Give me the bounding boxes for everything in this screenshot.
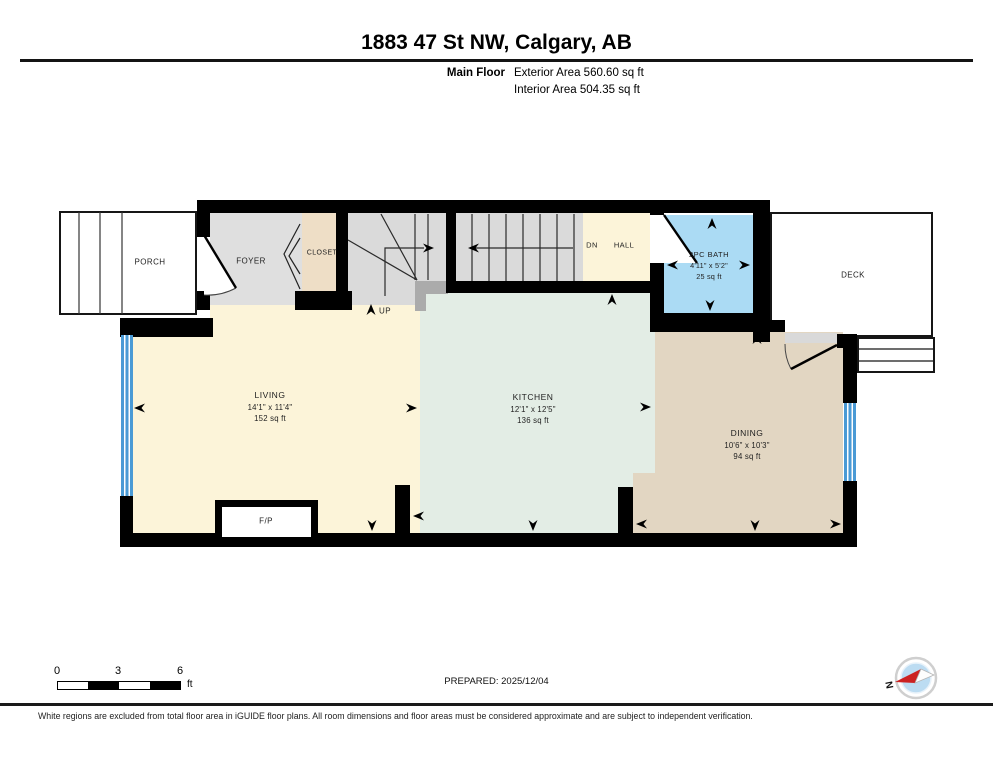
fireplace-label: F/P: [259, 517, 273, 526]
living-name: LIVING: [248, 390, 293, 400]
porch-area: [59, 211, 197, 315]
dining-dimensions: 10'6" x 10'3": [724, 441, 769, 450]
prepared-date: PREPARED: 2025/12/04: [0, 676, 993, 687]
kitchen-dimensions: 12'1" x 12'5": [510, 405, 555, 414]
dining-area: 94 sq ft: [724, 452, 769, 461]
wall-foyer-west-lower: [197, 291, 210, 310]
deck-steps: [857, 337, 935, 373]
interior-area-label: Interior Area 504.35 sq ft: [514, 84, 640, 96]
wall-foyer-west-upper: [197, 200, 210, 237]
stairs-up-label: UP: [379, 307, 391, 316]
bath-label: 2PC BATH 4'11" x 5'2" 25 sq ft: [689, 250, 729, 281]
dining-floor-sw: [633, 473, 655, 533]
kitchen-name: KITCHEN: [510, 392, 555, 402]
wall-kitchen-dining-stub: [618, 487, 633, 533]
header-divider: [20, 59, 973, 62]
bath-area: 25 sq ft: [689, 272, 729, 281]
floor-plan-page: 1883 47 St NW, Calgary, AB Main Floor Ex…: [0, 0, 993, 768]
wall-north: [197, 200, 767, 213]
wall-stairs-west: [336, 200, 348, 307]
porch-label: PORCH: [135, 258, 166, 267]
wall-dining-east-upper: [843, 334, 857, 403]
stairs-dn-label: DN: [586, 241, 598, 250]
living-window: [121, 335, 133, 496]
stair-landing-step-vertical: [415, 281, 426, 311]
page-title: 1883 47 St NW, Calgary, AB: [0, 31, 993, 55]
stairs-down-floor: [456, 213, 583, 281]
hall-label: HALL: [614, 241, 634, 250]
wall-dining-north: [650, 320, 785, 332]
footer-divider: [0, 703, 993, 706]
living-dimensions: 14'1" x 11'4": [248, 403, 293, 412]
wall-porch-south: [120, 318, 213, 337]
kitchen-area: 136 sq ft: [510, 416, 555, 425]
dining-name: DINING: [724, 428, 769, 438]
living-area: 152 sq ft: [248, 414, 293, 423]
wall-hall-south: [446, 281, 660, 293]
living-floor-west: [133, 337, 210, 533]
foyer-label: FOYER: [236, 257, 266, 266]
wall-bath-west-lower: [650, 263, 664, 315]
living-label: LIVING 14'1" x 11'4" 152 sq ft: [248, 390, 293, 423]
deck-label: DECK: [841, 271, 865, 280]
living-floor: [210, 305, 420, 533]
wall-stairs-mid: [446, 200, 456, 288]
wall-living-kitchen-stub: [395, 485, 410, 533]
dining-window: [844, 403, 856, 481]
exterior-area-label: Exterior Area 560.60 sq ft: [514, 67, 644, 79]
disclaimer-text: White regions are excluded from total fl…: [38, 711, 753, 721]
bath-dimensions: 4'11" x 5'2": [689, 261, 729, 270]
deck-door-threshold: [785, 333, 837, 343]
wall-dining-east-lower: [843, 481, 857, 547]
wall-bath-west-upper: [650, 200, 664, 215]
dining-label: DINING 10'6" x 10'3" 94 sq ft: [724, 428, 769, 461]
floor-label: Main Floor: [0, 67, 505, 79]
bath-name: 2PC BATH: [689, 250, 729, 259]
kitchen-label: KITCHEN 12'1" x 12'5" 136 sq ft: [510, 392, 555, 425]
closet-label: CLOSET: [307, 250, 337, 257]
